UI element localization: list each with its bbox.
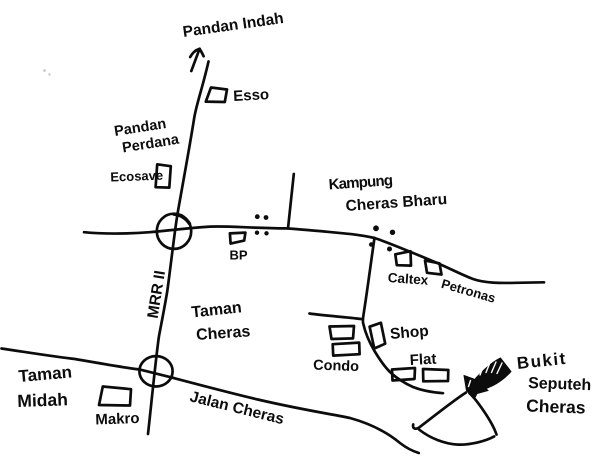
svg-text:Cheras: Cheras bbox=[526, 396, 586, 418]
svg-text:Taman: Taman bbox=[191, 299, 243, 321]
svg-text:BP: BP bbox=[230, 248, 248, 263]
svg-text:Ecosave: Ecosave bbox=[110, 168, 163, 185]
svg-text:Cheras: Cheras bbox=[196, 323, 251, 344]
svg-text:Seputeh: Seputeh bbox=[528, 375, 592, 394]
svg-text:Condo: Condo bbox=[313, 358, 360, 376]
svg-text:Flat: Flat bbox=[409, 351, 437, 369]
svg-text:Midah: Midah bbox=[17, 389, 68, 411]
svg-text:Taman: Taman bbox=[18, 362, 73, 386]
svg-text:Kampung: Kampung bbox=[328, 172, 393, 193]
svg-text:MRR II: MRR II bbox=[145, 269, 169, 319]
svg-text:Bukit: Bukit bbox=[516, 349, 568, 373]
svg-text:Esso: Esso bbox=[233, 86, 270, 105]
svg-text:Shop: Shop bbox=[389, 323, 429, 343]
svg-text:Makro: Makro bbox=[95, 410, 140, 429]
svg-text:Caltex: Caltex bbox=[387, 270, 429, 288]
svg-text:Pandan Indah: Pandan Indah bbox=[182, 10, 285, 41]
svg-text:Petronas: Petronas bbox=[440, 276, 498, 306]
svg-text:Cheras Bharu: Cheras Bharu bbox=[345, 191, 448, 215]
